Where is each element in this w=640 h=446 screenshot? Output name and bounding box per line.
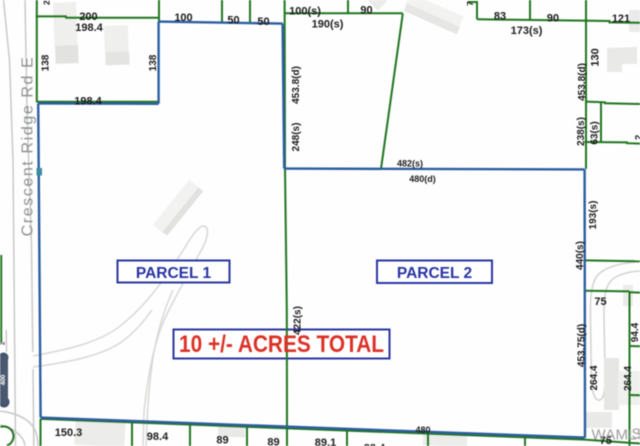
svg-text:138: 138 — [41, 54, 52, 71]
svg-text:440(s): 440(s) — [575, 241, 586, 270]
svg-text:50: 50 — [227, 14, 239, 26]
svg-text:PARCEL 1: PARCEL 1 — [136, 265, 212, 282]
svg-text:89.1: 89.1 — [315, 437, 336, 446]
svg-text:264.4: 264.4 — [623, 366, 634, 391]
svg-text:238(s): 238(s) — [576, 117, 587, 146]
svg-text:198.4: 198.4 — [75, 22, 103, 34]
svg-text:90: 90 — [547, 12, 559, 24]
svg-text:88.4: 88.4 — [364, 443, 386, 446]
svg-text:7: 7 — [465, 1, 475, 6]
svg-text:83: 83 — [494, 10, 506, 22]
svg-text:173(s): 173(s) — [511, 25, 543, 37]
svg-text:100: 100 — [174, 12, 192, 24]
svg-text:248(s): 248(s) — [291, 123, 302, 152]
svg-text:50: 50 — [257, 16, 269, 28]
svg-text:Crescent Ridge Rd E: Crescent Ridge Rd E — [20, 56, 37, 237]
svg-text:2: 2 — [42, 0, 52, 5]
svg-text:2: 2 — [634, 135, 640, 140]
svg-text:10 +/- ACRES TOTAL: 10 +/- ACRES TOTAL — [179, 331, 384, 358]
svg-text:98.4: 98.4 — [147, 431, 169, 443]
svg-text:121: 121 — [612, 13, 630, 25]
svg-text:453.8(d): 453.8(d) — [291, 66, 302, 104]
svg-text:130: 130 — [590, 48, 602, 66]
svg-text:PARCEL 2: PARCEL 2 — [397, 265, 472, 282]
svg-text:190(s): 190(s) — [312, 18, 344, 30]
svg-text:480: 480 — [415, 425, 430, 435]
svg-text:150.3: 150.3 — [55, 427, 83, 439]
svg-text:90: 90 — [360, 4, 372, 16]
svg-text:89: 89 — [267, 436, 279, 446]
svg-text:453.8(d): 453.8(d) — [577, 63, 588, 101]
svg-text:100(s): 100(s) — [289, 5, 321, 17]
svg-text:94.4: 94.4 — [630, 322, 640, 342]
svg-text:198.4: 198.4 — [74, 95, 102, 107]
svg-text:400: 400 — [0, 374, 7, 385]
svg-text:S: S — [632, 426, 640, 443]
svg-text:453.75(d): 453.75(d) — [576, 324, 587, 367]
svg-text:138: 138 — [148, 54, 159, 71]
svg-text:75: 75 — [594, 296, 606, 308]
svg-text:200: 200 — [79, 11, 97, 23]
svg-text:63(s): 63(s) — [589, 121, 600, 144]
svg-text:482(s): 482(s) — [397, 159, 423, 169]
svg-text:89: 89 — [216, 434, 228, 446]
svg-text:193(s): 193(s) — [588, 201, 599, 230]
svg-text:264.4: 264.4 — [589, 365, 600, 390]
svg-text:480(d): 480(d) — [409, 174, 436, 184]
